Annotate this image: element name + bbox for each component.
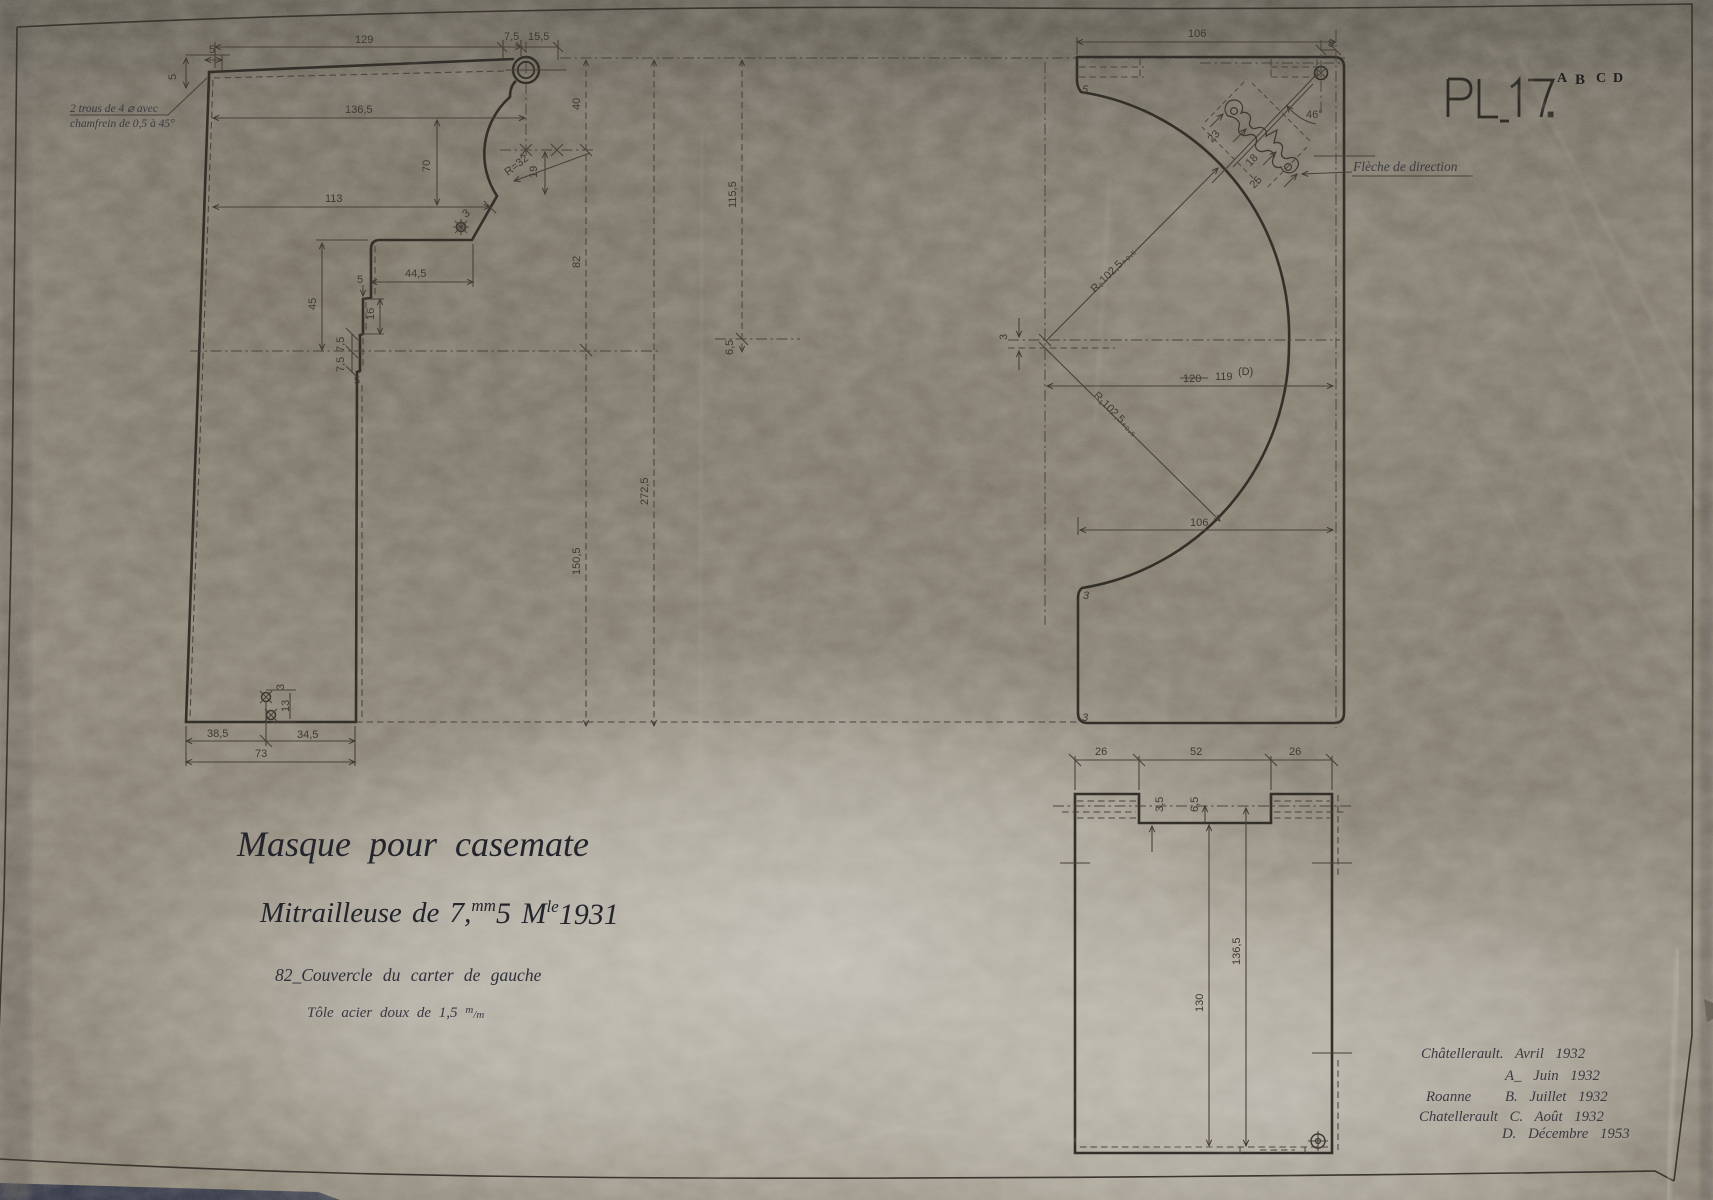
- svg-text:129: 129: [355, 34, 373, 46]
- svg-text:38,5: 38,5: [207, 728, 228, 740]
- svg-text:34,5: 34,5: [297, 729, 318, 741]
- svg-text:6,5: 6,5: [1189, 797, 1201, 812]
- svg-text:B: B: [1575, 72, 1585, 88]
- svg-text:82: 82: [571, 256, 583, 268]
- svg-text:5: 5: [167, 74, 179, 80]
- svg-text:150,5: 150,5: [571, 547, 583, 575]
- svg-text:2 trous de 4 ⌀ avec: 2 trous de 4 ⌀ avec: [70, 103, 158, 115]
- svg-text:113: 113: [325, 193, 343, 205]
- svg-text:5: 5: [357, 274, 363, 286]
- svg-text:B. Juillet 1932: B. Juillet 1932: [1505, 1089, 1608, 1105]
- svg-text:130: 130: [1194, 994, 1206, 1012]
- svg-text:106: 106: [1190, 517, 1208, 529]
- svg-text:7,5: 7,5: [504, 31, 519, 43]
- svg-text:82_Couvercle du carter de gauc: 82_Couvercle du carter de gauche: [275, 965, 542, 985]
- svg-text:Flèche de direction: Flèche de direction: [1352, 159, 1458, 174]
- svg-text:15,5: 15,5: [528, 31, 549, 43]
- svg-text:(D): (D): [1238, 366, 1253, 378]
- svg-text:272,5: 272,5: [639, 477, 651, 505]
- svg-text:D: D: [1613, 71, 1623, 86]
- svg-text:40: 40: [571, 98, 583, 110]
- svg-text:106: 106: [1188, 28, 1206, 40]
- svg-text:44,5: 44,5: [405, 268, 426, 280]
- svg-text:120: 120: [1183, 373, 1201, 385]
- svg-text:D. Décembre 1953: D. Décembre 1953: [1501, 1126, 1630, 1142]
- svg-text:3: 3: [1082, 712, 1089, 724]
- svg-text:13: 13: [280, 700, 292, 712]
- svg-text:5: 5: [209, 44, 215, 56]
- svg-text:8: 8: [1328, 38, 1334, 50]
- svg-text:Tôle acier doux de 1,5 m/m: Tôle acier doux de 1,5 m/m: [307, 1004, 484, 1021]
- svg-text:70: 70: [421, 160, 433, 172]
- svg-text:115,5: 115,5: [727, 181, 739, 208]
- svg-text:3: 3: [1083, 590, 1090, 602]
- svg-text:136,5: 136,5: [1231, 937, 1243, 965]
- svg-text:16: 16: [365, 308, 377, 320]
- svg-text:19: 19: [528, 166, 540, 178]
- svg-text:3: 3: [998, 334, 1010, 340]
- svg-text:chamfrein de 0,5 à 45°: chamfrein de 0,5 à 45°: [70, 118, 175, 130]
- svg-text:136,5: 136,5: [345, 104, 373, 116]
- svg-text:52: 52: [1190, 746, 1202, 758]
- svg-text:7,5: 7,5: [335, 337, 347, 352]
- svg-text:5: 5: [354, 375, 360, 387]
- svg-text:26: 26: [1095, 746, 1107, 758]
- svg-text:Mitrailleuse de 7,mm5 Mle1931: Mitrailleuse de 7,mm5 Mle1931: [259, 896, 619, 931]
- svg-text:3: 3: [275, 684, 287, 690]
- svg-text:3,5: 3,5: [1154, 797, 1166, 812]
- svg-text:Roanne: Roanne: [1425, 1089, 1472, 1105]
- svg-text:119: 119: [1215, 371, 1233, 383]
- svg-text:7,5: 7,5: [335, 357, 347, 372]
- svg-text:73: 73: [255, 748, 267, 760]
- svg-text:Masque pour casemate: Masque pour casemate: [236, 824, 589, 864]
- svg-text:A_ Juin 1932: A_ Juin 1932: [1504, 1068, 1601, 1084]
- svg-text:Châtellerault. Avril 1932: Châtellerault. Avril 1932: [1421, 1046, 1586, 1062]
- svg-text:Chatellerault C. Août 1932: Chatellerault C. Août 1932: [1419, 1109, 1604, 1125]
- svg-text:C: C: [1596, 71, 1606, 86]
- svg-text:46°: 46°: [1306, 109, 1323, 121]
- svg-text:6,5: 6,5: [724, 340, 736, 355]
- svg-text:A: A: [1557, 71, 1568, 86]
- svg-text:5: 5: [1082, 84, 1089, 96]
- svg-text:45: 45: [307, 298, 319, 310]
- svg-text:26: 26: [1289, 746, 1301, 758]
